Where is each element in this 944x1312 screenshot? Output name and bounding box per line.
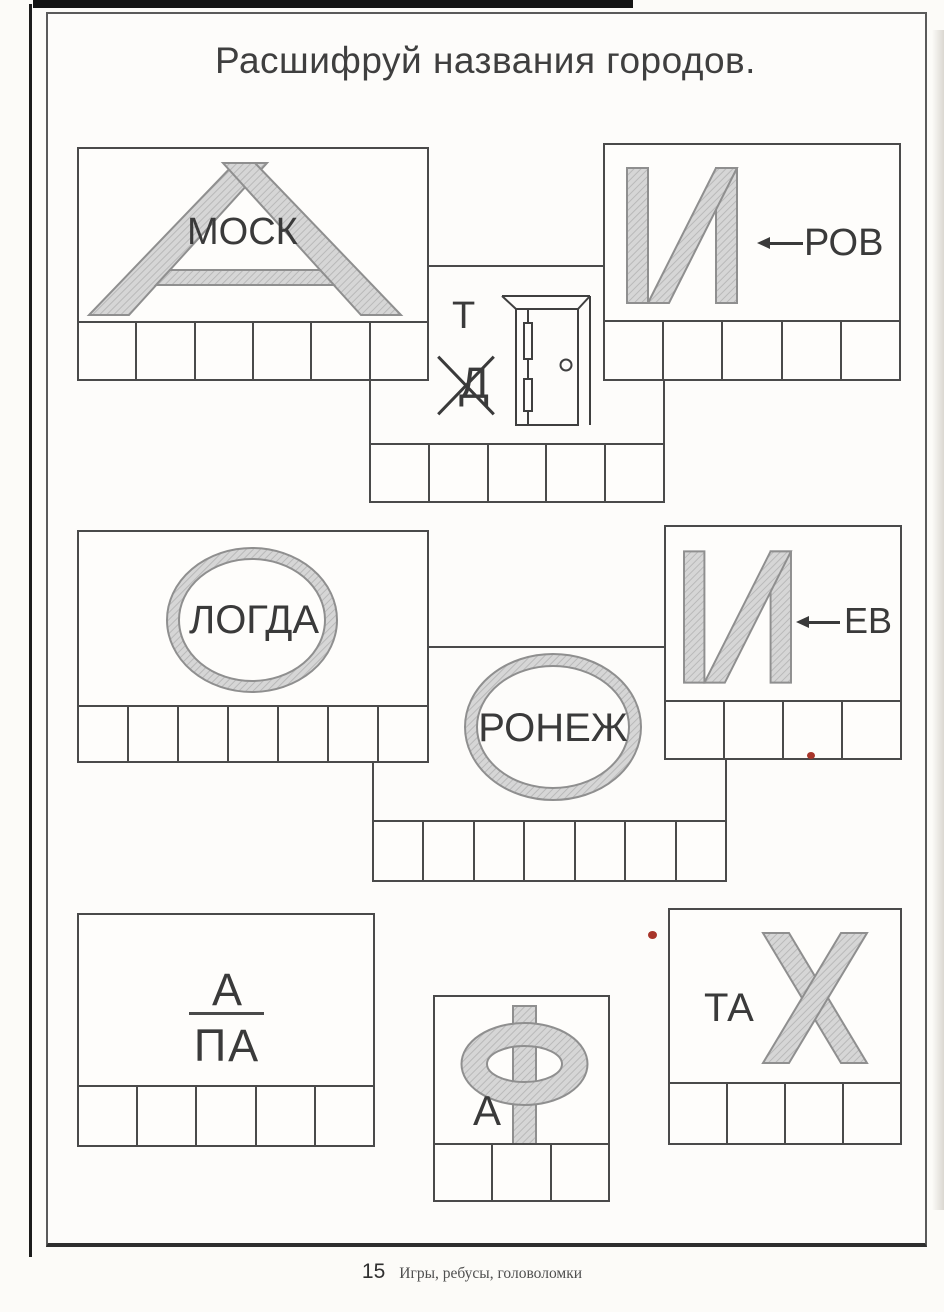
tver-crossed-letter-d: Д	[438, 356, 494, 414]
left-arrow-icon	[796, 615, 840, 629]
answer-cell[interactable]	[179, 707, 229, 761]
answer-cell[interactable]	[254, 323, 312, 379]
answer-cell[interactable]	[329, 707, 379, 761]
answer-row-ukhta	[668, 1082, 902, 1145]
page-title: Расшифруй названия городов.	[46, 40, 925, 82]
answer-cell[interactable]	[424, 822, 474, 880]
puzzle-anapa-picture: А ПА	[77, 913, 375, 1087]
answer-cell[interactable]	[626, 822, 676, 880]
answer-cell[interactable]	[312, 323, 370, 379]
answer-cell[interactable]	[229, 707, 279, 761]
scan-edge-artifact-top	[33, 0, 633, 8]
answer-cell[interactable]	[725, 702, 784, 758]
answer-cell[interactable]	[723, 322, 782, 379]
left-arrow-icon	[757, 236, 803, 250]
answer-cell[interactable]	[843, 702, 900, 758]
red-dot-artifact	[807, 752, 815, 759]
kiev-text: ЕВ	[844, 603, 892, 639]
answer-cell[interactable]	[374, 822, 424, 880]
anapa-numerator: А	[182, 967, 272, 1012]
answer-cell[interactable]	[677, 822, 725, 880]
page-footer: 15 Игры, ребусы, головоломки	[0, 1260, 944, 1284]
answer-cell[interactable]	[435, 1145, 493, 1200]
scanned-worksheet-page: Расшифруй названия городов. МОСК РОВ	[0, 0, 944, 1312]
answer-cell[interactable]	[547, 445, 606, 501]
answer-cell[interactable]	[129, 707, 179, 761]
voronezh-room-right-line	[725, 760, 727, 820]
answer-cell[interactable]	[79, 707, 129, 761]
vologda-inner-text: ЛОГДА	[174, 600, 334, 640]
answer-cell[interactable]	[430, 445, 489, 501]
answer-cell[interactable]	[606, 445, 663, 501]
puzzle-ukhta-picture: ТА	[668, 908, 902, 1084]
answer-row-voronezh	[372, 820, 727, 882]
big-letter-kh-graphic	[763, 933, 867, 1063]
fraction-bar	[189, 1012, 264, 1015]
kirov-text: РОВ	[804, 224, 883, 262]
puzzle-vologda-picture: ЛОГДА	[77, 530, 429, 707]
answer-cell[interactable]	[786, 1084, 844, 1143]
answer-cell[interactable]	[379, 707, 427, 761]
scan-edge-artifact-left	[29, 4, 32, 1257]
answer-cell[interactable]	[257, 1087, 316, 1145]
moskva-inner-text: МОСК	[187, 213, 298, 251]
answer-row-tver	[369, 443, 665, 503]
answer-cell[interactable]	[844, 1084, 900, 1143]
answer-cell[interactable]	[489, 445, 548, 501]
big-letter-i-graphic	[627, 168, 737, 303]
tver-room-top-line	[429, 265, 605, 267]
answer-cell[interactable]	[664, 322, 723, 379]
answer-cell[interactable]	[784, 702, 843, 758]
puzzle-kiev-picture: ЕВ	[664, 525, 902, 702]
ufa-small-letter: А	[473, 1090, 501, 1132]
answer-cell[interactable]	[197, 1087, 256, 1145]
puzzle-moskva-picture: МОСК	[77, 147, 429, 323]
answer-cell[interactable]	[279, 707, 329, 761]
tver-letter-t: Т	[452, 297, 475, 335]
book-title: Игры, ребусы, головоломки	[399, 1265, 582, 1283]
answer-cell[interactable]	[493, 1145, 551, 1200]
answer-cell[interactable]	[525, 822, 575, 880]
answer-row-vologda	[77, 705, 429, 763]
anapa-denominator: ПА	[182, 1023, 272, 1068]
answer-cell[interactable]	[371, 445, 430, 501]
voronezh-inner-text: РОНЕЖ	[470, 708, 636, 748]
voronezh-room-left-line	[372, 763, 374, 820]
answer-cell[interactable]	[728, 1084, 786, 1143]
answer-cell[interactable]	[783, 322, 842, 379]
answer-row-ufa	[433, 1143, 610, 1202]
big-letter-i-graphic	[684, 550, 791, 684]
answer-cell[interactable]	[576, 822, 626, 880]
answer-row-kirov	[603, 320, 901, 381]
door-icon	[498, 293, 593, 428]
page-number: 15	[362, 1260, 385, 1284]
answer-row-anapa	[77, 1085, 375, 1147]
answer-row-moskva	[77, 321, 429, 381]
red-dot-artifact	[648, 931, 657, 939]
voronezh-room-top-line	[429, 646, 664, 648]
answer-cell[interactable]	[138, 1087, 197, 1145]
tver-room-right-line	[663, 381, 665, 445]
answer-cell[interactable]	[79, 1087, 138, 1145]
tver-room-left-line	[369, 381, 371, 445]
answer-cell[interactable]	[842, 322, 899, 379]
answer-cell[interactable]	[666, 702, 725, 758]
answer-cell[interactable]	[371, 323, 427, 379]
answer-cell[interactable]	[316, 1087, 373, 1145]
answer-cell[interactable]	[137, 323, 195, 379]
puzzle-kirov-picture: РОВ	[603, 143, 901, 322]
answer-row-kiev	[664, 700, 902, 760]
answer-cell[interactable]	[79, 323, 137, 379]
answer-cell[interactable]	[605, 322, 664, 379]
scan-edge-artifact-right	[932, 30, 944, 1210]
answer-cell[interactable]	[552, 1145, 608, 1200]
answer-cell[interactable]	[196, 323, 254, 379]
answer-cell[interactable]	[475, 822, 525, 880]
puzzle-ufa-picture: А	[433, 995, 610, 1145]
ukhta-small-text: ТА	[704, 988, 754, 1028]
answer-cell[interactable]	[670, 1084, 728, 1143]
